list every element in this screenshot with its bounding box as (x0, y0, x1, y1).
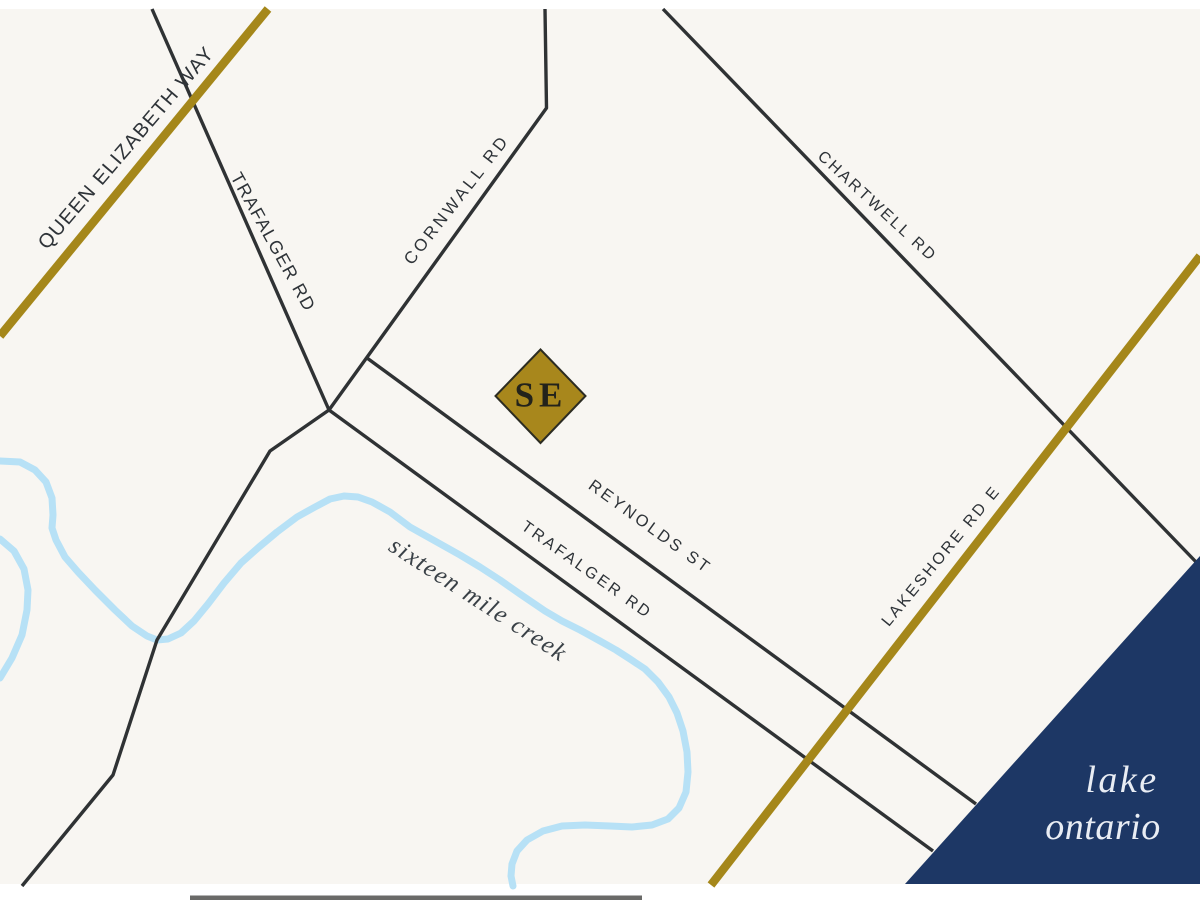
svg-text:SE: SE (515, 376, 568, 415)
svg-text:lake: lake (1085, 759, 1158, 801)
svg-text:ontario: ontario (1045, 806, 1160, 848)
